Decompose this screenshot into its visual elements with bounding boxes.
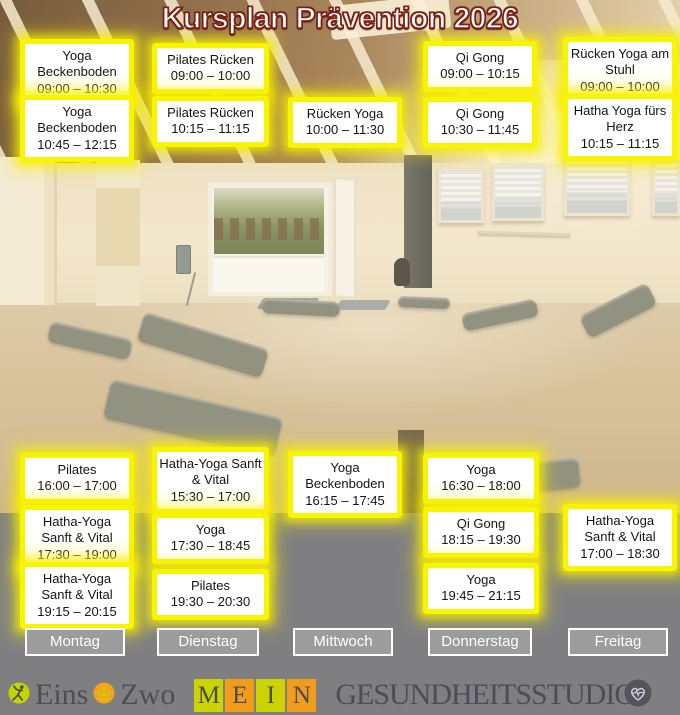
course-name: Qi Gong <box>430 50 530 66</box>
course-card-dienstag-3: Hatha-Yoga Sanft & Vital 15:30 – 17:00 <box>157 452 264 509</box>
course-card-mittwoch-2: Yoga Beckenboden 16:15 – 17:45 <box>293 456 397 513</box>
course-time: 15:30 – 17:00 <box>159 489 262 505</box>
course-name: Pilates Rücken <box>159 105 262 121</box>
course-time: 16:30 – 18:00 <box>430 478 532 494</box>
mein-tile-i: I <box>256 679 285 712</box>
heart-pulse-icon <box>624 679 652 712</box>
course-card-montag-3: Pilates 16:00 – 17:00 <box>25 458 129 499</box>
course-name: Rücken Yoga <box>295 106 395 122</box>
course-time: 09:00 – 10:15 <box>430 66 530 82</box>
course-time: 10:45 – 12:15 <box>27 137 127 153</box>
mein-tile-m: M <box>194 679 223 712</box>
course-time: 19:45 – 21:15 <box>430 588 532 604</box>
course-card-freitag-3: Hatha-Yoga Sanft & Vital 17:00 – 18:30 <box>568 509 672 566</box>
course-time: 10:30 – 11:45 <box>430 122 530 138</box>
day-button-montag[interactable]: Montag <box>25 628 125 656</box>
dancer-pose-icon <box>8 682 30 709</box>
course-name: Yoga <box>159 522 262 538</box>
course-card-dienstag-2: Pilates Rücken 10:15 – 11:15 <box>157 101 264 142</box>
course-card-dienstag-1: Pilates Rücken 09:00 – 10:00 <box>157 48 264 89</box>
course-card-montag-4: Hatha-Yoga Sanft & Vital 17:30 – 19:00 <box>25 510 129 567</box>
mein-letter-tiles: M E I N <box>194 679 316 712</box>
course-time: 17:00 – 18:30 <box>570 546 670 562</box>
course-card-freitag-2: Hatha Yoga fürs Herz 10:15 – 11:15 <box>568 99 672 156</box>
course-time: 10:00 – 11:30 <box>295 122 395 138</box>
course-card-donnerstag-2: Qi Gong 10:30 – 11:45 <box>428 102 532 143</box>
course-name: Qi Gong <box>430 516 532 532</box>
course-name: Pilates <box>159 578 262 594</box>
day-button-dienstag[interactable]: Dienstag <box>157 628 259 656</box>
studio-logo: Eins Zwo M E I N GESUNDHEITSSTUDIO <box>8 676 652 714</box>
course-time: 16:15 – 17:45 <box>295 493 395 509</box>
course-name: Hatha-Yoga Sanft & Vital <box>27 514 127 547</box>
mein-tile-e: E <box>225 679 254 712</box>
course-card-dienstag-4: Yoga 17:30 – 18:45 <box>157 518 264 559</box>
course-card-mittwoch-1: Rücken Yoga 10:00 – 11:30 <box>293 102 397 143</box>
course-time: 17:30 – 18:45 <box>159 538 262 554</box>
course-name: Hatha-Yoga Sanft & Vital <box>159 456 262 489</box>
course-card-donnerstag-1: Qi Gong 09:00 – 10:15 <box>428 46 532 87</box>
course-card-freitag-1: Rücken Yoga am Stuhl 09:00 – 10:00 <box>568 42 672 99</box>
course-card-montag-5: Hatha-Yoga Sanft & Vital 19:15 – 20:15 <box>25 567 129 624</box>
course-name: Yoga Beckenboden <box>27 104 127 137</box>
mein-tile-n: N <box>287 679 316 712</box>
brand-word-eins: Eins <box>35 676 88 714</box>
course-name: Qi Gong <box>430 106 530 122</box>
course-time: 09:00 – 10:00 <box>570 79 670 95</box>
day-button-donnerstag[interactable]: Donnerstag <box>428 628 532 656</box>
course-name: Pilates Rücken <box>159 52 262 68</box>
course-time: 19:30 – 20:30 <box>159 594 262 610</box>
course-card-montag-1: Yoga Beckenboden 09:00 – 10:30 <box>25 44 129 101</box>
course-card-donnerstag-3: Yoga 16:30 – 18:00 <box>428 458 534 499</box>
brand-word-zwo: Zwo <box>120 676 175 714</box>
course-name: Rücken Yoga am Stuhl <box>570 46 670 79</box>
lotus-icon <box>93 682 115 709</box>
course-time: 09:00 – 10:00 <box>159 68 262 84</box>
course-time: 10:15 – 11:15 <box>570 136 670 152</box>
course-name: Hatha-Yoga Sanft & Vital <box>27 571 127 604</box>
course-name: Hatha-Yoga Sanft & Vital <box>570 513 670 546</box>
kursplan-poster: Kursplan Prävention 2026 Yoga Beckenbode… <box>0 0 680 715</box>
course-name: Yoga <box>430 462 532 478</box>
course-time: 16:00 – 17:00 <box>27 478 127 494</box>
course-time: 09:00 – 10:30 <box>27 81 127 97</box>
course-card-dienstag-5: Pilates 19:30 – 20:30 <box>157 574 264 615</box>
course-name: Pilates <box>27 462 127 478</box>
course-card-donnerstag-5: Yoga 19:45 – 21:15 <box>428 568 534 609</box>
course-name: Yoga <box>430 572 532 588</box>
course-card-montag-2: Yoga Beckenboden 10:45 – 12:15 <box>25 100 129 157</box>
course-time: 10:15 – 11:15 <box>159 121 262 137</box>
course-name: Yoga Beckenboden <box>295 460 395 493</box>
course-name: Yoga Beckenboden <box>27 48 127 81</box>
course-card-donnerstag-4: Qi Gong 18:15 – 19:30 <box>428 512 534 553</box>
day-button-mittwoch[interactable]: Mittwoch <box>293 628 393 656</box>
course-time: 19:15 – 20:15 <box>27 604 127 620</box>
studio-wordmark: GESUNDHEITSSTUDIO <box>335 676 635 714</box>
course-time: 18:15 – 19:30 <box>430 532 532 548</box>
page-title: Kursplan Prävention 2026 <box>0 0 680 38</box>
course-name: Hatha Yoga fürs Herz <box>570 103 670 136</box>
day-button-freitag[interactable]: Freitag <box>568 628 668 656</box>
course-time: 17:30 – 19:00 <box>27 547 127 563</box>
